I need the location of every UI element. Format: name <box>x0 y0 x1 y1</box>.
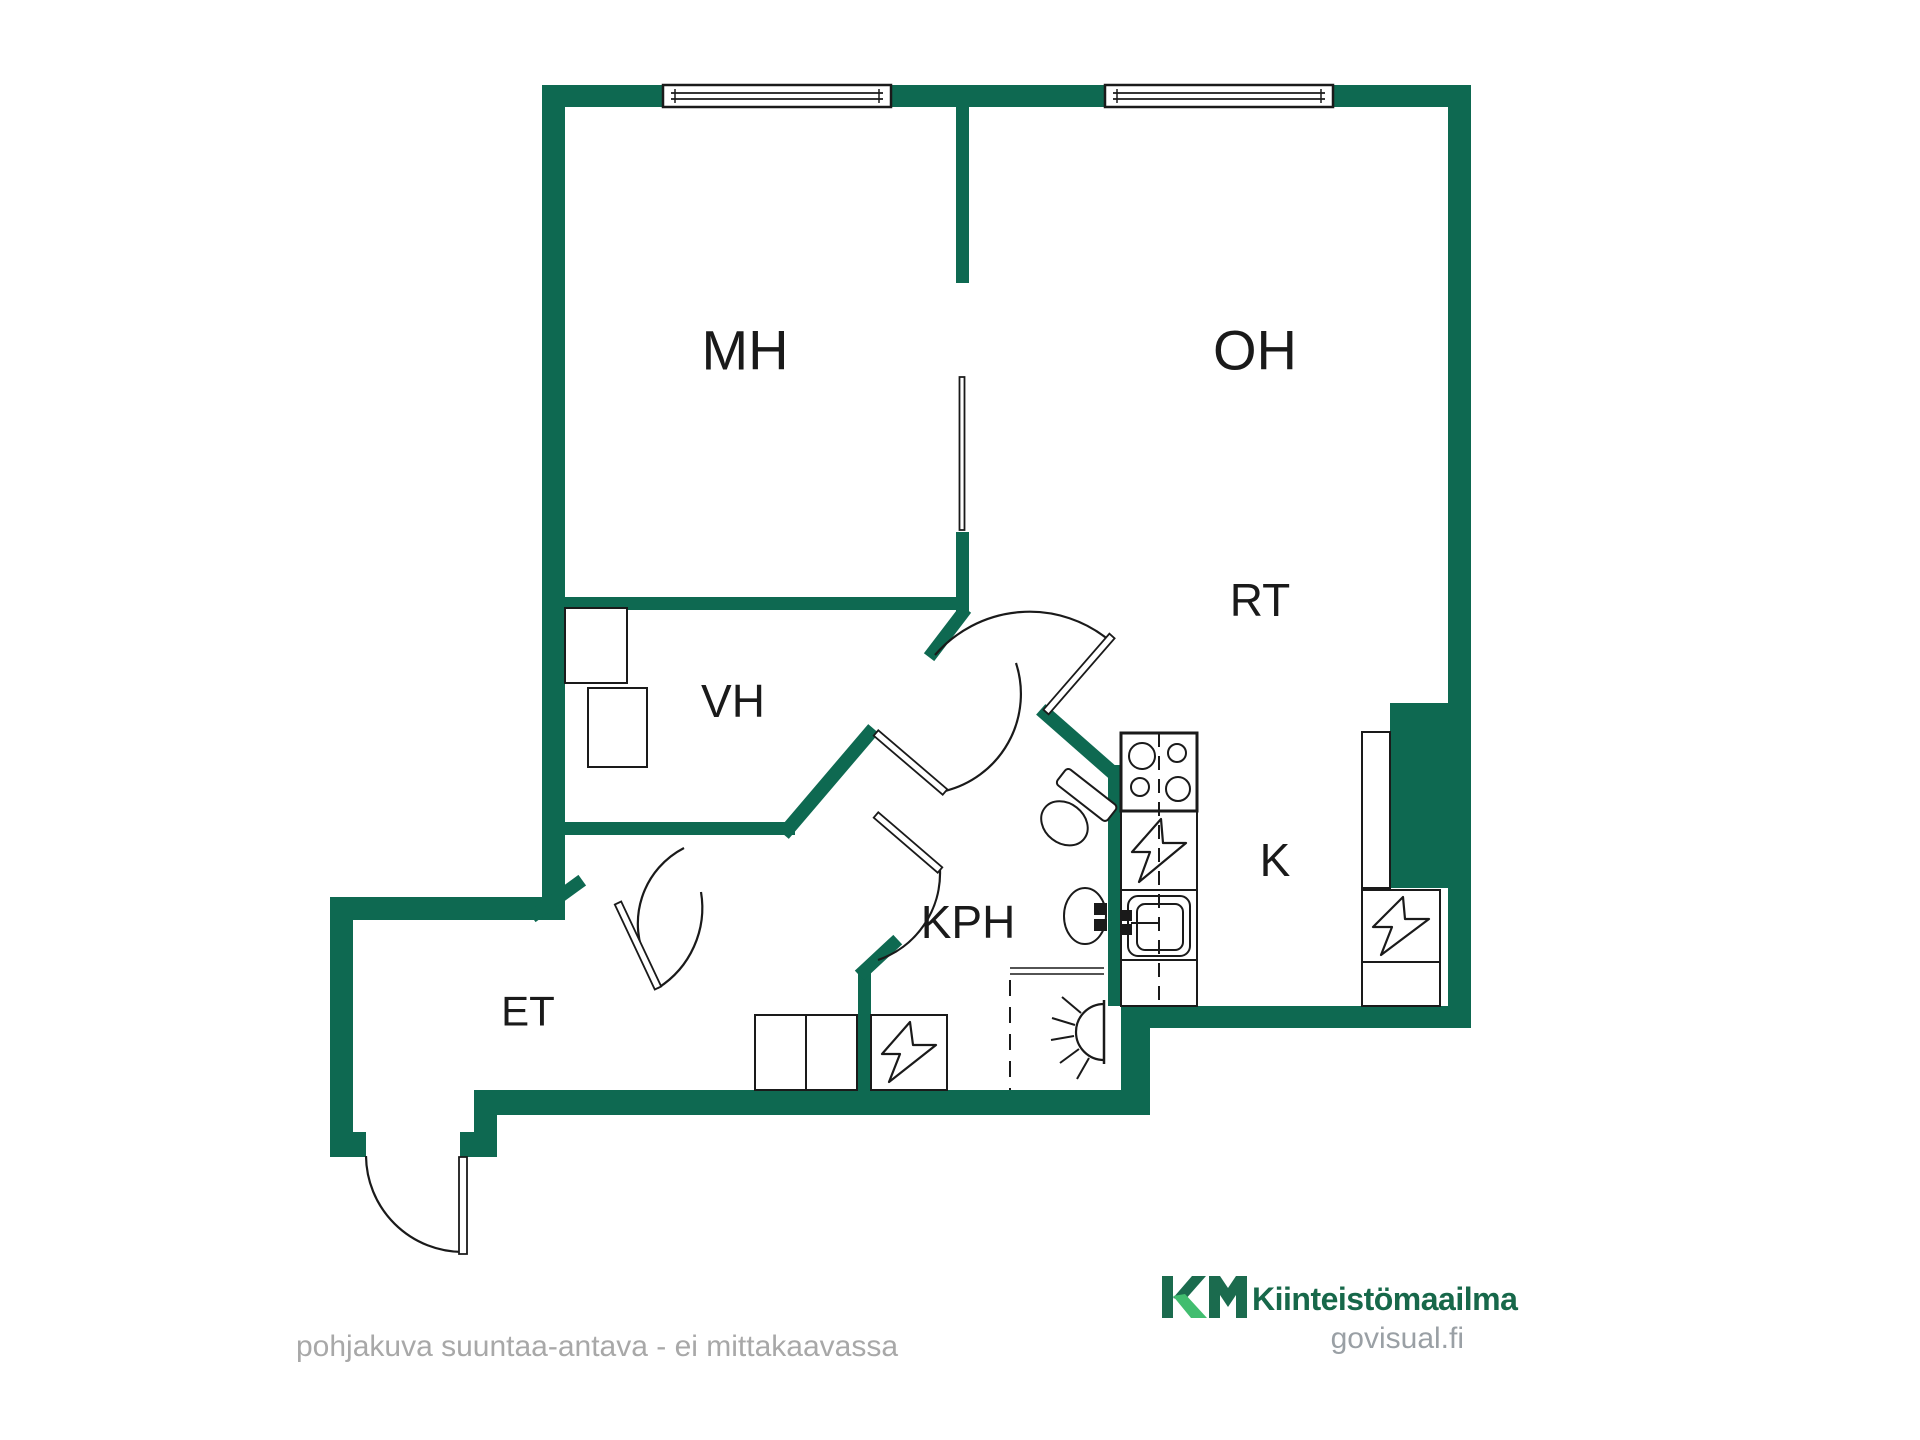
window <box>663 85 891 107</box>
washbasin-tap <box>1095 920 1106 930</box>
window <box>1105 85 1333 107</box>
km-logo-k-leg <box>1173 1294 1207 1318</box>
vh-closet-1 <box>565 608 627 683</box>
sink-tap <box>1121 911 1131 920</box>
lamp-ray <box>1052 1018 1075 1025</box>
door-leaf <box>960 377 965 530</box>
stove-burner <box>1131 778 1149 796</box>
floor-plan: MHOHRTVHKPHKET <box>0 0 1920 1440</box>
wall <box>330 1132 366 1157</box>
toilet <box>1027 767 1118 858</box>
door-arc <box>366 1156 463 1252</box>
door-leaf <box>459 1157 467 1254</box>
lamp-ray <box>1051 1036 1074 1040</box>
wall <box>1046 714 1112 772</box>
wall <box>474 1090 1150 1115</box>
floor-plan-page: MHOHRTVHKPHKET pohjakuva suuntaa-antava … <box>0 0 1920 1440</box>
km-logo-m <box>1209 1276 1247 1318</box>
wall <box>542 85 565 920</box>
vh-closet-2 <box>588 688 647 767</box>
disclaimer-text: pohjakuva suuntaa-antava - ei mittakaava… <box>296 1330 898 1364</box>
washbasin-tap <box>1095 904 1106 914</box>
brand-name: Kiinteistömaailma <box>1252 1281 1517 1318</box>
door-arc <box>658 892 702 988</box>
door-arc <box>945 663 1021 791</box>
room-label-k: K <box>1260 834 1291 886</box>
wall <box>330 897 565 920</box>
wall <box>330 897 353 1157</box>
door-arc <box>638 848 684 962</box>
wall <box>858 968 871 1090</box>
room-label-mh: MH <box>701 319 788 382</box>
wall <box>864 944 893 971</box>
site-link: govisual.fi <box>1331 1322 1464 1356</box>
stove-burner <box>1166 777 1190 801</box>
room-label-vh: VH <box>701 675 765 727</box>
wall <box>1390 703 1471 888</box>
wall <box>565 822 795 835</box>
room-label-et: ET <box>501 988 555 1035</box>
stove-burner <box>1168 744 1186 762</box>
room-label-oh: OH <box>1213 319 1297 382</box>
door-leaf <box>874 730 948 794</box>
km-logo-k-stem <box>1162 1276 1173 1318</box>
door-leaf <box>1043 634 1114 715</box>
kitchen-tall-cabinet <box>1362 732 1390 888</box>
wall <box>956 107 969 283</box>
door-leaf <box>874 812 943 872</box>
wall <box>933 614 962 652</box>
lamp-ray <box>1077 1058 1089 1079</box>
wall <box>788 734 869 829</box>
lamp-ray <box>1062 997 1081 1013</box>
room-label-kph: KPH <box>921 896 1016 948</box>
washbasin <box>1064 888 1106 944</box>
sink-tap <box>1121 925 1131 934</box>
wall <box>1121 1006 1471 1028</box>
stove-burner <box>1129 743 1155 769</box>
lamp-ray <box>1060 1049 1079 1063</box>
room-label-rt: RT <box>1230 574 1291 626</box>
kitchen-cabinet-low <box>1362 962 1440 1006</box>
